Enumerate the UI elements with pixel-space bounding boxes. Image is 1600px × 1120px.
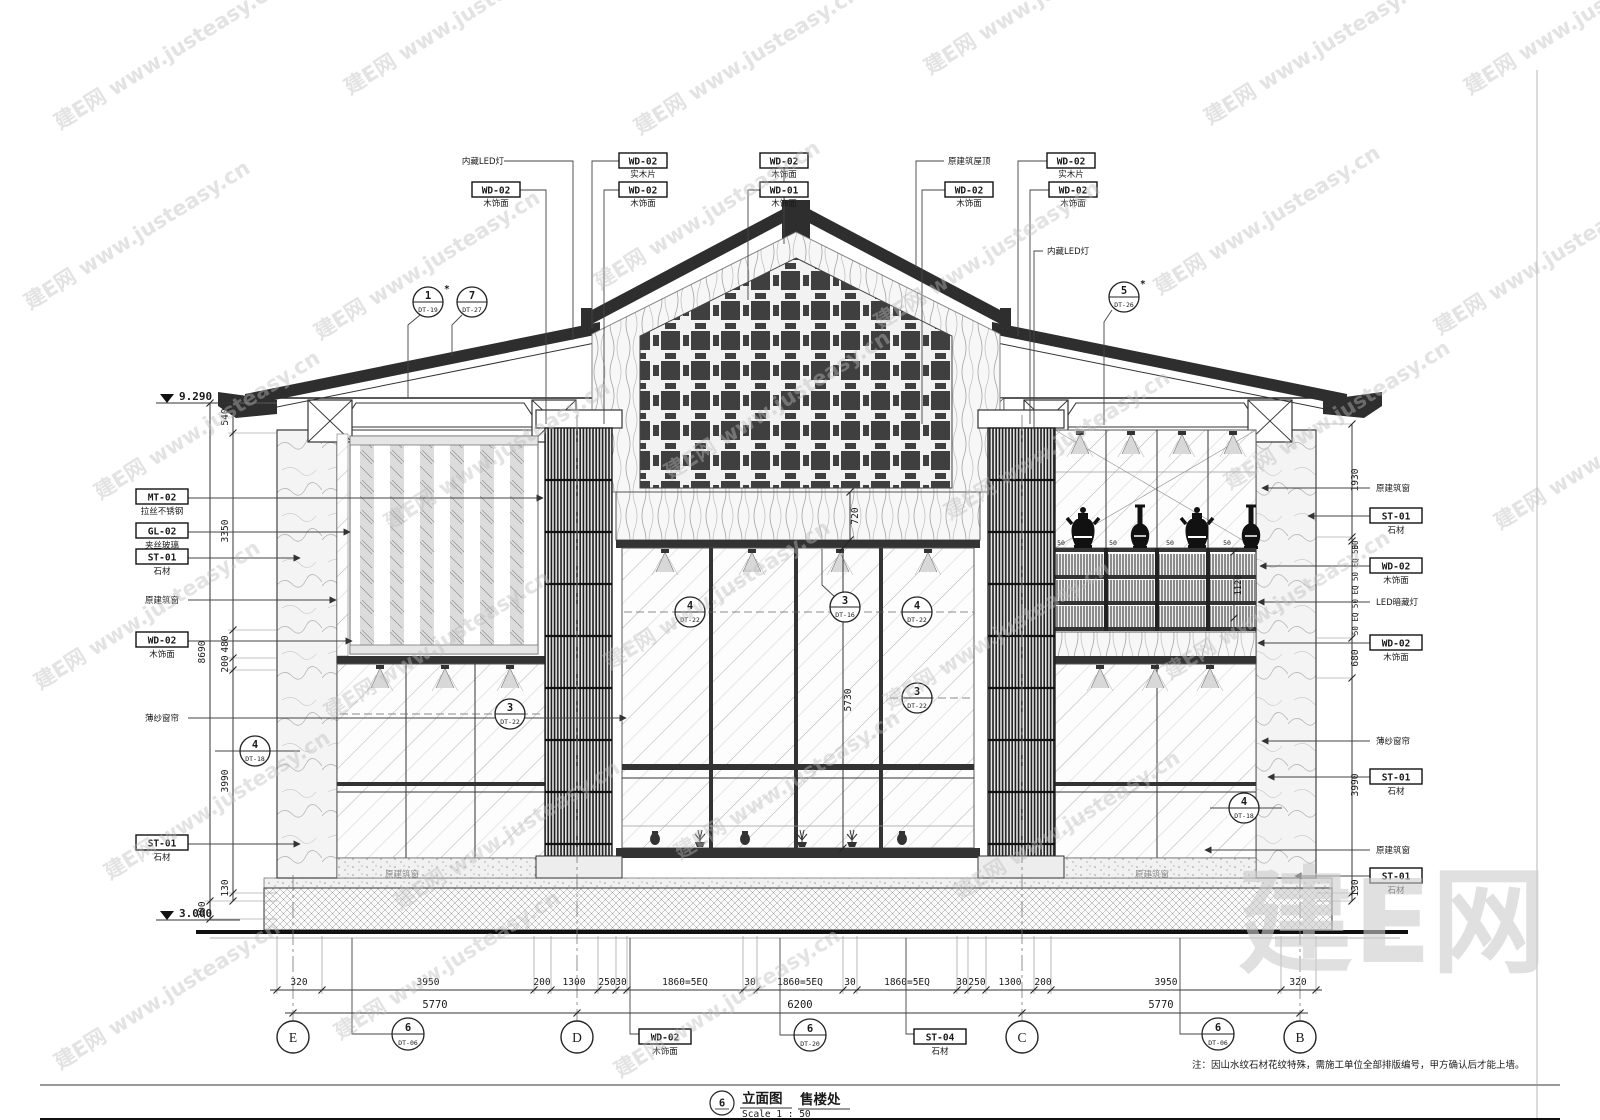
svg-text:建E网 www.justeasy.cn: 建E网 www.justeasy.cn bbox=[1200, 0, 1434, 129]
inner-label-right: 原建筑窗 bbox=[1135, 869, 1169, 880]
svg-text:E: E bbox=[289, 1030, 297, 1045]
svg-text:DT-16: DT-16 bbox=[835, 611, 855, 619]
svg-text:D: D bbox=[572, 1030, 582, 1045]
svg-text:木饰面: 木饰面 bbox=[1383, 575, 1409, 586]
svg-text:WD-02: WD-02 bbox=[1057, 157, 1086, 168]
detail-marker-5-dt26: 5 DT-26 * bbox=[1109, 279, 1146, 312]
cad-elevation-sheet: 原建筑窗 原建筑窗 50 50 50 bbox=[0, 0, 1600, 1120]
svg-text:建E网 www.justeasy.cn: 建E网 www.justeasy.cn bbox=[1490, 375, 1600, 534]
svg-text:6: 6 bbox=[1215, 1022, 1221, 1034]
wood-slat-panel bbox=[350, 436, 538, 654]
svg-text:实木片: 实木片 bbox=[630, 169, 656, 180]
svg-text:3.000: 3.000 bbox=[179, 907, 212, 920]
svg-text:木饰面: 木饰面 bbox=[1383, 652, 1409, 663]
svg-text:石材: 石材 bbox=[1387, 786, 1405, 797]
callout-gl02: GL-02 夹丝玻璃 bbox=[136, 523, 188, 551]
callout-wd02-5: WD-02 木饰面 bbox=[945, 182, 993, 209]
callout-wd02-6: WD-02 实木片 bbox=[1047, 153, 1095, 180]
svg-text:建E网 www.justeasy.cn: 建E网 www.justeasy.cn bbox=[340, 0, 574, 99]
callout-wd02-left: WD-02 木饰面 bbox=[136, 632, 188, 660]
svg-text:DT-27: DT-27 bbox=[462, 306, 482, 314]
svg-text:建E网 www.justeasy.cn: 建E网 www.justeasy.cn bbox=[310, 185, 544, 344]
detail-marker-6-dt06-b: 6 DT-06 bbox=[1202, 1018, 1234, 1050]
svg-text:ST-01: ST-01 bbox=[1382, 512, 1411, 523]
svg-text:30: 30 bbox=[844, 977, 856, 988]
svg-text:9.290: 9.290 bbox=[179, 390, 212, 403]
svg-text:6: 6 bbox=[719, 1098, 725, 1110]
svg-text:4: 4 bbox=[914, 600, 920, 612]
dimensions-right: 1930 50 50 EQ 50 EQ 50 EQ 50 680 3990 13… bbox=[1316, 421, 1361, 905]
svg-text:320: 320 bbox=[290, 977, 307, 988]
svg-text:DT-06: DT-06 bbox=[1208, 1039, 1228, 1047]
svg-text:3350: 3350 bbox=[220, 519, 231, 542]
svg-text:480: 480 bbox=[220, 635, 231, 652]
callout-st01-left1: ST-01 石材 bbox=[136, 549, 188, 577]
svg-text:50: 50 bbox=[1109, 539, 1117, 547]
svg-text:WD-02: WD-02 bbox=[482, 186, 511, 197]
ground-line bbox=[196, 930, 1408, 934]
svg-text:ST-04: ST-04 bbox=[926, 1033, 955, 1044]
svg-text:C: C bbox=[1017, 1030, 1026, 1045]
svg-text:680: 680 bbox=[1350, 649, 1361, 666]
svg-text:250: 250 bbox=[598, 977, 615, 988]
svg-text:5770: 5770 bbox=[422, 999, 447, 1011]
svg-text:木饰面: 木饰面 bbox=[771, 198, 797, 209]
building: 原建筑窗 原建筑窗 50 50 50 bbox=[196, 200, 1408, 1021]
svg-text:DT-22: DT-22 bbox=[500, 718, 520, 726]
svg-text:实木片: 实木片 bbox=[1058, 169, 1084, 180]
svg-text:建E网 www.justeasy.cn: 建E网 www.justeasy.cn bbox=[630, 0, 864, 139]
svg-text:7: 7 bbox=[469, 290, 475, 302]
svg-text:DT-19: DT-19 bbox=[418, 306, 438, 314]
detail-marker-4-dt18-right: 4 DT-18 bbox=[1229, 793, 1259, 823]
glass-strip bbox=[337, 434, 348, 656]
detail-marker-1-dt19: 1 DT-19 * bbox=[413, 284, 450, 317]
svg-text:200: 200 bbox=[1034, 977, 1051, 988]
svg-text:4: 4 bbox=[1241, 796, 1247, 808]
detail-marker-3-dt22-a: 3 DT-22 bbox=[495, 699, 525, 729]
svg-text:250: 250 bbox=[968, 977, 985, 988]
label-sheer-curtain-left: 薄纱窗帘 bbox=[145, 713, 179, 724]
svg-text:木饰面: 木饰面 bbox=[956, 198, 982, 209]
svg-text:1300: 1300 bbox=[999, 977, 1022, 988]
svg-text:WD-02: WD-02 bbox=[629, 186, 658, 197]
svg-text:200: 200 bbox=[533, 977, 550, 988]
detail-marker-3-dt16: 3 DT-16 bbox=[830, 592, 860, 622]
detail-marker-7-dt27: 7 DT-27 bbox=[457, 287, 487, 317]
stone-wall-right bbox=[1256, 430, 1316, 878]
watermark-big: 建E网 bbox=[1238, 856, 1547, 990]
svg-text:4: 4 bbox=[252, 739, 258, 751]
dim-labels-row2: 5770 6200 5770 bbox=[422, 999, 1173, 1011]
svg-text:MT-02: MT-02 bbox=[148, 493, 177, 504]
svg-text:200: 200 bbox=[220, 655, 231, 672]
svg-text:5: 5 bbox=[1121, 285, 1127, 297]
svg-text:WD-02: WD-02 bbox=[955, 186, 984, 197]
title-scale: Scale 1 : 50 bbox=[742, 1109, 811, 1120]
svg-text:DT-20: DT-20 bbox=[800, 1040, 820, 1048]
svg-text:1120: 1120 bbox=[1234, 575, 1244, 595]
svg-text:石材: 石材 bbox=[153, 566, 171, 577]
grid-bubble-D: D bbox=[561, 1021, 593, 1053]
svg-text:720: 720 bbox=[850, 507, 861, 524]
stone-wall-left bbox=[277, 430, 337, 878]
svg-text:DT-22: DT-22 bbox=[907, 616, 927, 624]
svg-text:5730: 5730 bbox=[843, 688, 854, 711]
svg-text:ST-01: ST-01 bbox=[148, 553, 177, 564]
svg-text:*: * bbox=[444, 284, 450, 295]
label-orig-roof: 原建筑屋顶 bbox=[948, 156, 991, 167]
svg-text:DT-18: DT-18 bbox=[1234, 812, 1254, 820]
svg-text:50: 50 bbox=[1223, 539, 1231, 547]
svg-text:6200: 6200 bbox=[787, 999, 812, 1011]
svg-text:拉丝不锈钢: 拉丝不锈钢 bbox=[141, 506, 184, 517]
detail-marker-6-dt06-a: 6 DT-06 bbox=[392, 1018, 424, 1050]
label-led-left: 内藏LED灯 bbox=[462, 156, 505, 167]
svg-text:B: B bbox=[1295, 1030, 1304, 1045]
label-sheer-curtain-right: 薄纱窗帘 bbox=[1376, 736, 1410, 747]
callout-wd02-3: WD-02 木饰面 bbox=[619, 182, 667, 209]
label-orig-window-right2: 原建筑窗 bbox=[1376, 845, 1410, 856]
svg-text:DT-06: DT-06 bbox=[398, 1039, 418, 1047]
svg-text:WD-02: WD-02 bbox=[1382, 562, 1411, 573]
svg-text:建E网 www.justeasy.cn: 建E网 www.justeasy.cn bbox=[50, 0, 284, 134]
callout-mt02: MT-02 拉丝不锈钢 bbox=[136, 489, 188, 517]
callout-wd02-2: WD-02 实木片 bbox=[619, 153, 667, 180]
svg-text:3950: 3950 bbox=[1155, 977, 1178, 988]
sheet-note: 注：因山水纹石材花纹特殊，需施工单位全部排版编号，甲方确认后才能上墙。 bbox=[1192, 1059, 1525, 1071]
title-name: 售楼处 bbox=[799, 1091, 841, 1108]
callout-st04-bottom: ST-04 石材 bbox=[914, 1029, 966, 1057]
plinth bbox=[196, 878, 1408, 938]
elevation-drawing: 原建筑窗 原建筑窗 50 50 50 bbox=[0, 0, 1600, 1120]
svg-text:30: 30 bbox=[956, 977, 968, 988]
svg-text:ST-01: ST-01 bbox=[1382, 773, 1411, 784]
svg-text:WD-02: WD-02 bbox=[1382, 639, 1411, 650]
callout-wd02-right1: WD-02 木饰面 bbox=[1370, 558, 1422, 586]
svg-text:30: 30 bbox=[615, 977, 627, 988]
detail-marker-6-dt20: 6 DT-20 bbox=[794, 1019, 826, 1051]
svg-text:5770: 5770 bbox=[1148, 999, 1173, 1011]
svg-text:1: 1 bbox=[425, 290, 431, 302]
svg-text:6: 6 bbox=[807, 1023, 813, 1035]
svg-text:石材: 石材 bbox=[931, 1046, 949, 1057]
svg-text:3: 3 bbox=[507, 702, 513, 714]
svg-text:石材: 石材 bbox=[1387, 525, 1405, 536]
elevation-marker-bottom: 3.000 bbox=[156, 907, 240, 920]
svg-text:1860=5EQ: 1860=5EQ bbox=[662, 977, 708, 988]
svg-text:WD-02: WD-02 bbox=[629, 157, 658, 168]
svg-text:建E网 www.justeasy.cn: 建E网 www.justeasy.cn bbox=[20, 155, 254, 314]
svg-text:50: 50 bbox=[1057, 539, 1065, 547]
svg-text:8690: 8690 bbox=[197, 640, 208, 663]
svg-text:建E网 www.justeasy.cn: 建E网 www.justeasy.cn bbox=[1460, 0, 1600, 99]
svg-text:建E网 www.justeasy.cn: 建E网 www.justeasy.cn bbox=[1150, 140, 1384, 299]
callout-wd02-right2: WD-02 木饰面 bbox=[1370, 635, 1422, 663]
title-number-bubble: 6 bbox=[710, 1091, 734, 1115]
grid-bubble-C: C bbox=[1006, 1021, 1038, 1053]
svg-text:1860=5EQ: 1860=5EQ bbox=[884, 977, 930, 988]
roof-right-slope bbox=[992, 322, 1347, 406]
title-type: 立面图 bbox=[742, 1090, 783, 1107]
svg-text:木饰面: 木饰面 bbox=[149, 649, 175, 660]
label-led-right: 内藏LED灯 bbox=[1047, 246, 1090, 257]
detail-marker-4-dt22-b: 4 DT-22 bbox=[902, 597, 932, 627]
svg-text:*: * bbox=[1140, 279, 1146, 290]
svg-text:WD-02: WD-02 bbox=[148, 636, 177, 647]
svg-text:建E网 www.justeasy.cn: 建E网 www.justeasy.cn bbox=[920, 0, 1154, 79]
grid-bubble-E: E bbox=[277, 1021, 309, 1053]
label-orig-window-right1: 原建筑窗 bbox=[1376, 483, 1410, 494]
grid-bubble-B: B bbox=[1284, 1021, 1316, 1053]
callout-st01-right2: ST-01 石材 bbox=[1370, 769, 1422, 797]
label-led-strip: LED暗藏灯 bbox=[1376, 597, 1419, 608]
svg-text:GL-02: GL-02 bbox=[148, 527, 177, 538]
svg-text:建E网 www.justeasy.cn: 建E网 www.justeasy.cn bbox=[1430, 180, 1600, 339]
svg-text:6: 6 bbox=[405, 1022, 411, 1034]
svg-text:建E网 www.justeasy.cn: 建E网 www.justeasy.cn bbox=[50, 915, 284, 1074]
svg-text:DT-26: DT-26 bbox=[1114, 301, 1134, 309]
svg-text:木饰面: 木饰面 bbox=[630, 198, 656, 209]
svg-text:130: 130 bbox=[220, 879, 231, 896]
svg-text:1300: 1300 bbox=[563, 977, 586, 988]
svg-text:50: 50 bbox=[1166, 539, 1174, 547]
svg-text:3: 3 bbox=[842, 595, 848, 607]
